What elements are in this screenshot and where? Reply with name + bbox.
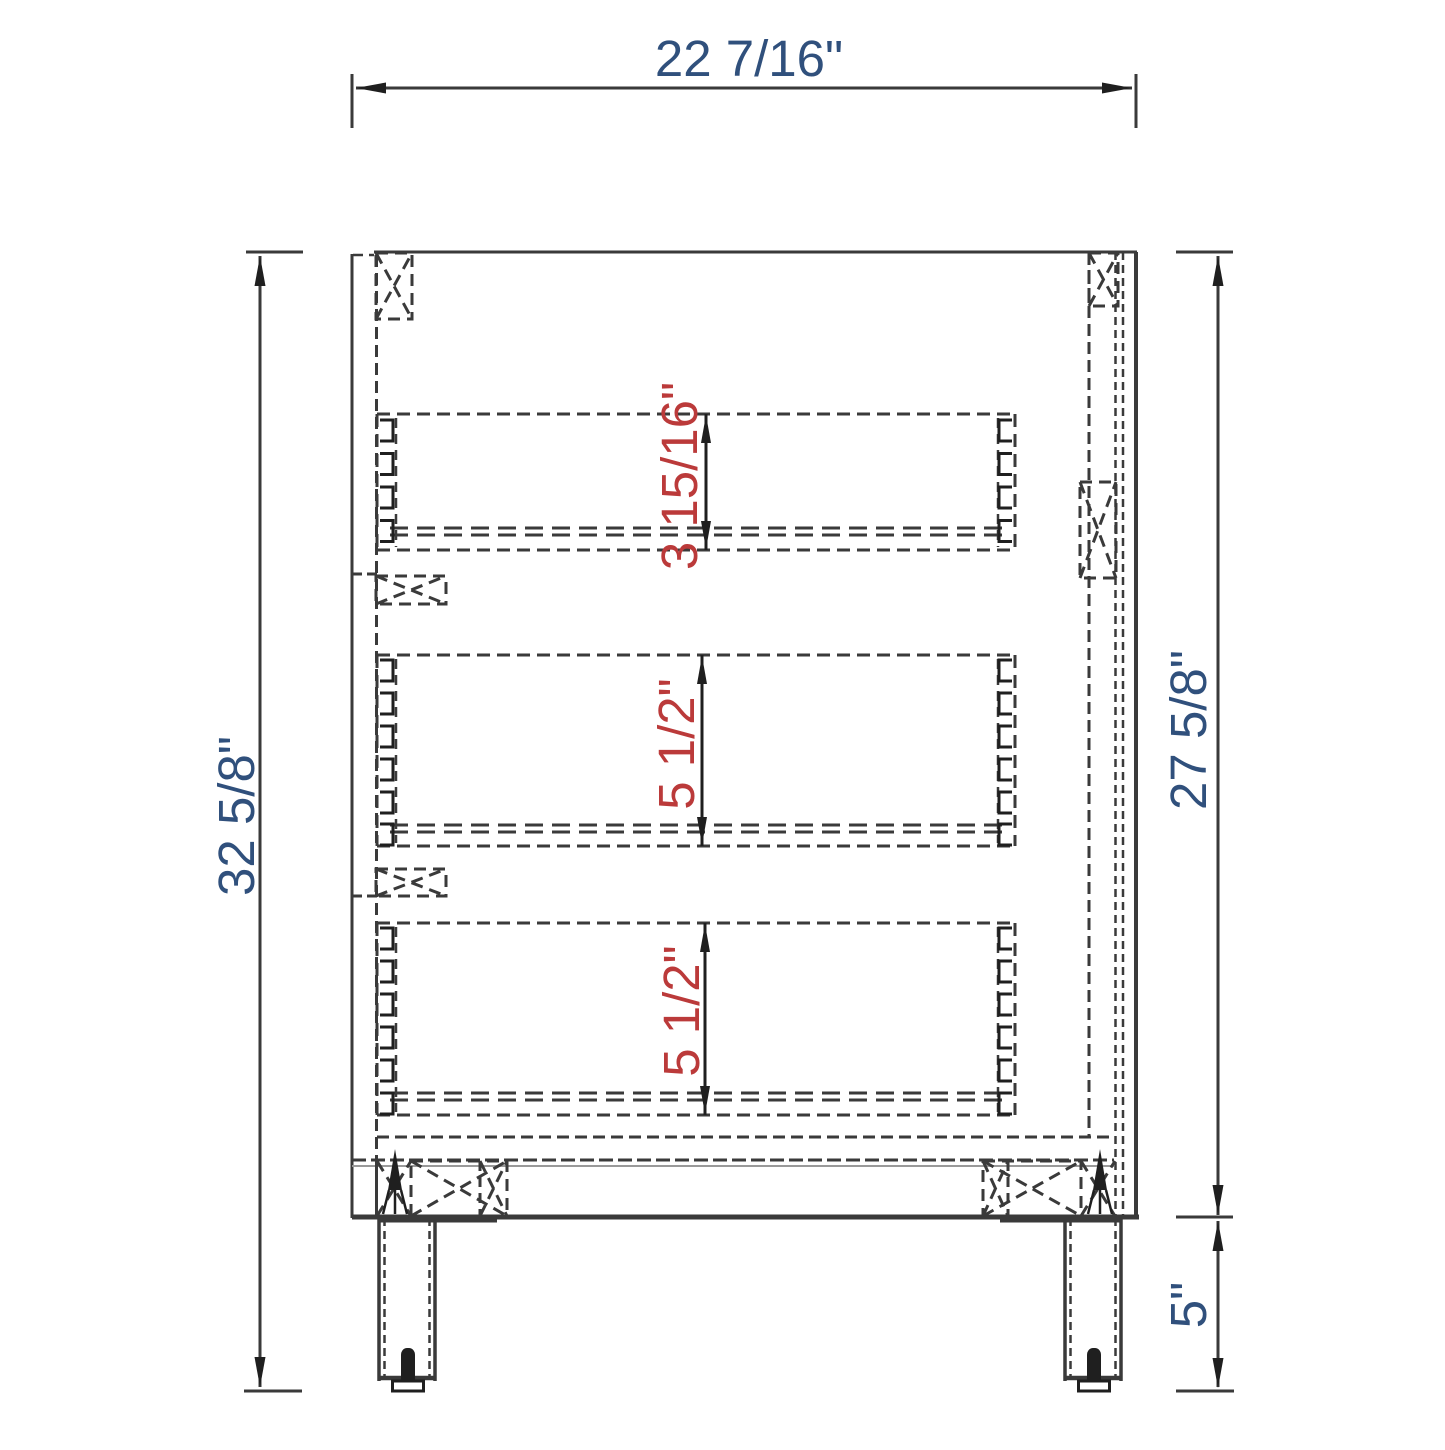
svg-text:5": 5" <box>1160 1282 1217 1328</box>
svg-text:3 15/16": 3 15/16" <box>651 382 708 570</box>
svg-text:22 7/16": 22 7/16" <box>655 30 843 87</box>
svg-text:5 1/2": 5 1/2" <box>653 945 710 1077</box>
svg-text:27 5/8": 27 5/8" <box>1160 650 1217 810</box>
svg-text:5 1/2": 5 1/2" <box>648 678 705 810</box>
svg-text:32 5/8": 32 5/8" <box>208 736 265 896</box>
